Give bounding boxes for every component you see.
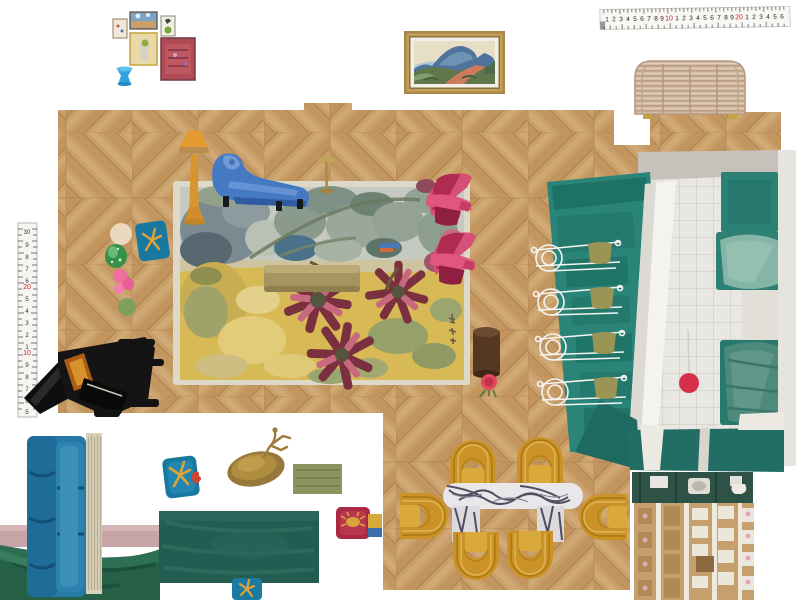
- svg-text:3: 3: [619, 16, 623, 23]
- svg-text:7: 7: [647, 16, 651, 23]
- svg-text:8: 8: [724, 14, 728, 21]
- svg-text:9: 9: [660, 15, 664, 22]
- svg-text:10: 10: [23, 350, 31, 357]
- svg-text:9: 9: [730, 14, 734, 21]
- svg-text:5: 5: [633, 16, 637, 23]
- svg-text:6: 6: [640, 16, 644, 23]
- svg-text:4: 4: [696, 15, 700, 22]
- svg-text:2: 2: [752, 14, 756, 21]
- svg-text:2: 2: [682, 15, 686, 22]
- svg-text:4: 4: [766, 14, 770, 21]
- svg-text:1: 1: [675, 15, 679, 22]
- svg-text:5: 5: [773, 14, 777, 21]
- svg-text:30: 30: [24, 230, 31, 236]
- svg-text:7: 7: [717, 15, 721, 22]
- svg-text:20: 20: [23, 284, 31, 291]
- svg-text:3: 3: [759, 14, 763, 21]
- svg-text:1: 1: [745, 14, 749, 21]
- svg-text:6: 6: [780, 14, 784, 21]
- svg-text:8: 8: [654, 16, 658, 23]
- svg-text:4: 4: [626, 16, 630, 23]
- svg-text:2: 2: [612, 16, 616, 23]
- svg-text:20: 20: [735, 14, 743, 21]
- svg-text:5: 5: [703, 15, 707, 22]
- svg-text:3: 3: [689, 15, 693, 22]
- svg-text:6: 6: [710, 15, 714, 22]
- svg-text:10: 10: [665, 15, 673, 22]
- svg-text:1: 1: [605, 16, 609, 23]
